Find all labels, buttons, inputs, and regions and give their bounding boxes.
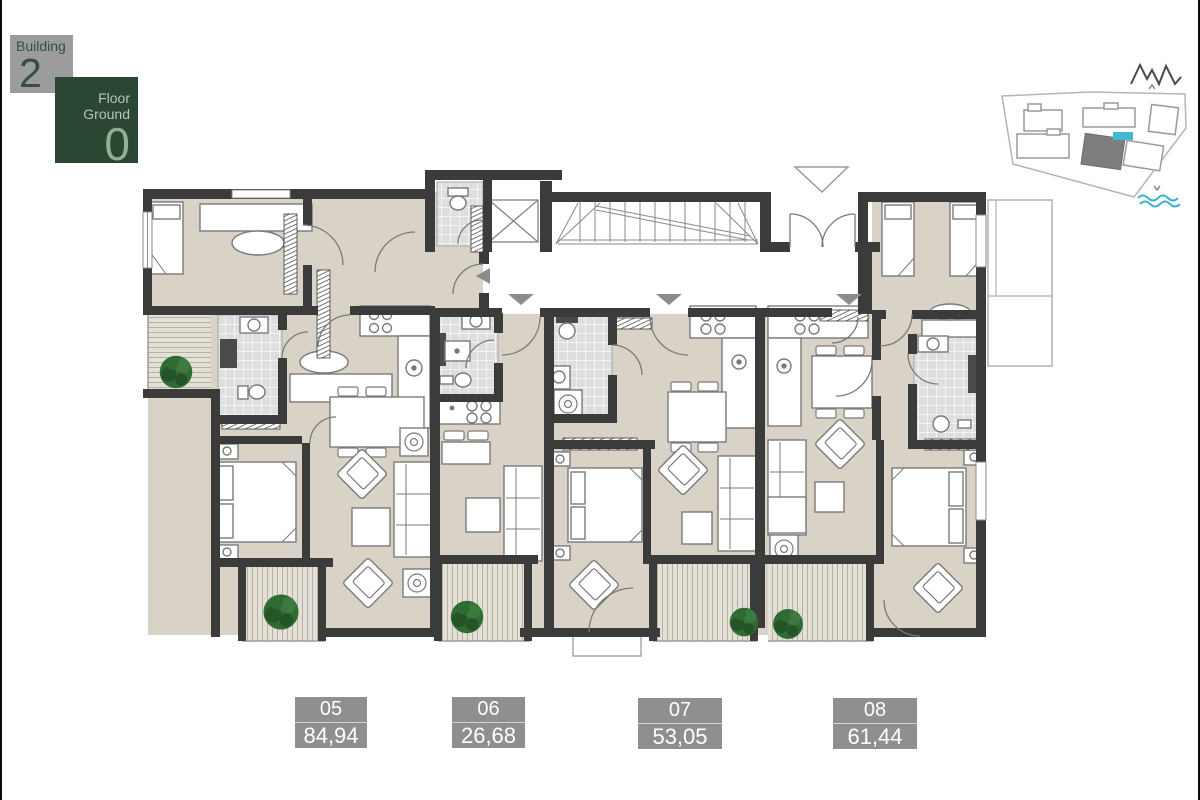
unit-number: 06	[452, 697, 525, 723]
floor-plan	[130, 160, 1060, 670]
floor-badge-number: 0	[55, 123, 130, 165]
sea-icon	[1138, 196, 1180, 207]
unit-number: 05	[295, 697, 367, 723]
apartment-05-region[interactable]	[143, 189, 432, 637]
left-edge-bar	[0, 0, 2, 800]
stairs	[552, 202, 762, 250]
floor-badge: Floor Ground 0	[55, 77, 138, 163]
apartment-08-region[interactable]	[755, 192, 985, 637]
pool-marker	[1113, 132, 1133, 140]
unit-area: 84,94	[295, 723, 367, 748]
unit-area: 61,44	[833, 724, 917, 749]
unit-number: 08	[833, 698, 917, 724]
elevator	[489, 200, 538, 242]
apartment-06-region[interactable]	[432, 308, 544, 637]
patio	[988, 200, 1052, 366]
unit-area: 53,05	[638, 724, 722, 749]
sea-caret-icon	[1154, 186, 1160, 190]
wc-fixtures	[448, 188, 468, 210]
unit-label-08[interactable]: 08 61,44	[833, 698, 917, 749]
unit-label-06[interactable]: 06 26,68	[452, 697, 525, 748]
mountains-icon	[1131, 65, 1181, 84]
unit-label-05[interactable]: 05 84,94	[295, 697, 367, 748]
entrance-arrow-icon	[795, 167, 848, 192]
unit-label-07[interactable]: 07 53,05	[638, 698, 722, 749]
unit-number: 07	[638, 698, 722, 724]
floor-badge-word: Floor	[55, 90, 130, 106]
apartment-07-region[interactable]	[544, 308, 755, 637]
unit-area: 26,68	[452, 723, 525, 748]
north-caret-icon	[1149, 85, 1155, 89]
